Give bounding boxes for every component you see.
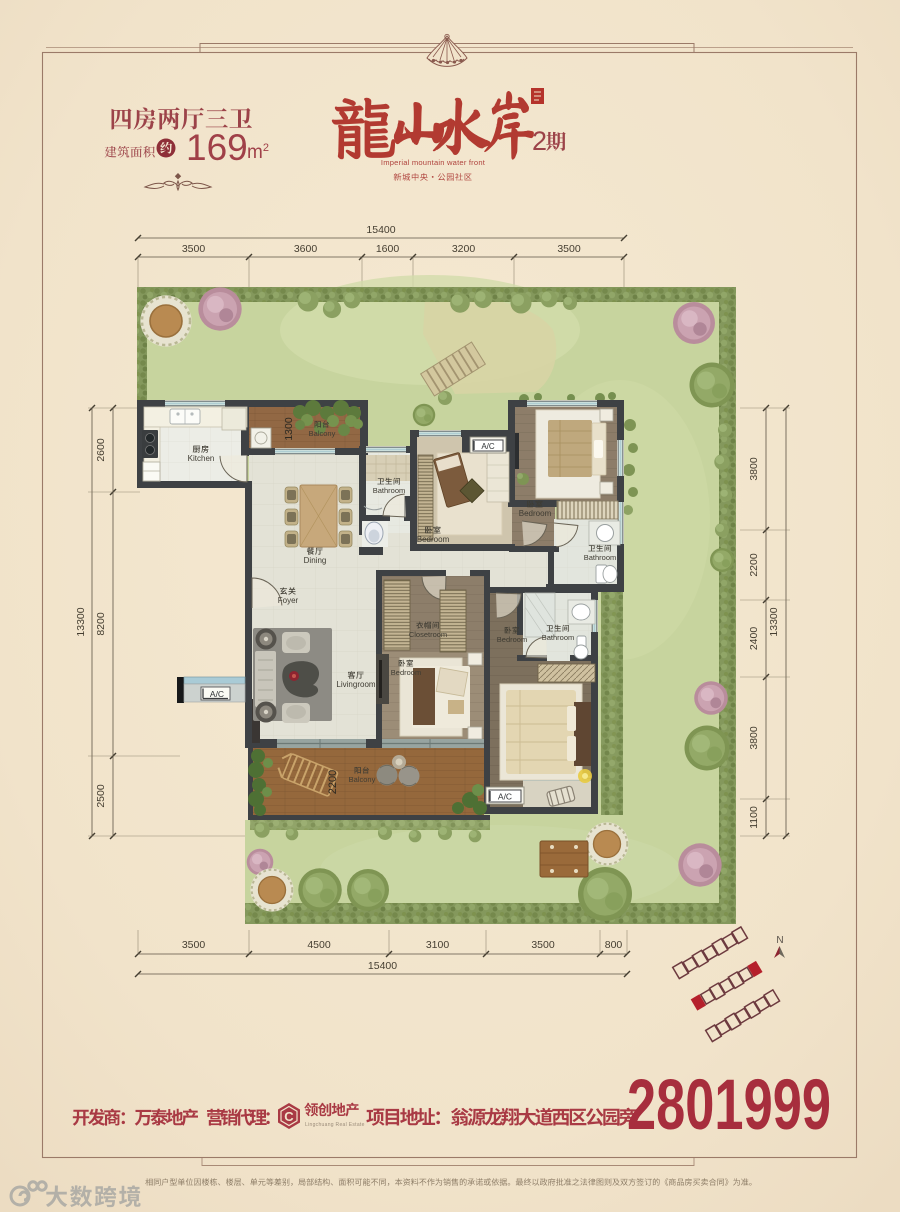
svg-text:Imperial mountain water front: Imperial mountain water front [381,158,486,167]
svg-text:Balcony: Balcony [349,775,376,784]
svg-text:1300: 1300 [283,417,295,441]
svg-text:2801999: 2801999 [627,1066,831,1145]
svg-text:3500: 3500 [531,939,555,951]
svg-text:Foyer: Foyer [278,596,299,605]
svg-text:800: 800 [605,939,623,951]
svg-text:15400: 15400 [368,960,397,972]
svg-text:Bathroom: Bathroom [584,553,617,562]
svg-text:3200: 3200 [452,243,476,255]
svg-text:3800: 3800 [748,457,760,481]
svg-text:Bathroom: Bathroom [373,486,406,495]
svg-text:2500: 2500 [95,784,107,808]
svg-text:169: 169 [186,127,248,168]
svg-text:N: N [776,935,783,946]
svg-text:2: 2 [532,126,547,156]
svg-text:2200: 2200 [748,553,760,577]
svg-text:Balcony: Balcony [309,429,336,438]
svg-text:3500: 3500 [557,243,581,255]
svg-text:3100: 3100 [426,939,450,951]
svg-text:1600: 1600 [376,243,400,255]
svg-text:Bedroom: Bedroom [519,509,552,518]
svg-text:2600: 2600 [95,438,107,462]
svg-text:3600: 3600 [294,243,318,255]
svg-text:3800: 3800 [748,726,760,750]
svg-text:A/C: A/C [498,792,512,802]
svg-text:13300: 13300 [75,607,87,636]
svg-text:Dining: Dining [304,556,327,565]
svg-text:Bedroom: Bedroom [417,535,450,544]
svg-text:15400: 15400 [366,224,395,236]
svg-text:Bathroom: Bathroom [542,633,575,642]
svg-text:8200: 8200 [95,612,107,636]
svg-text:Bedroom: Bedroom [391,668,421,677]
svg-text:A/C: A/C [210,689,224,699]
svg-text:Lingchuang Real Estate: Lingchuang Real Estate [305,1122,365,1128]
svg-text:Closetroom: Closetroom [409,630,447,639]
svg-text:A/C: A/C [481,442,495,451]
svg-text:4500: 4500 [307,939,331,951]
svg-text:Bedroom: Bedroom [497,635,527,644]
svg-text:3500: 3500 [182,939,206,951]
svg-text:C: C [284,1109,294,1124]
svg-text:Kitchen: Kitchen [188,454,215,463]
svg-text:1100: 1100 [748,806,760,829]
svg-text:2400: 2400 [748,627,760,651]
svg-text:Livingroom: Livingroom [336,680,375,689]
svg-text:3500: 3500 [182,243,206,255]
svg-text:2200: 2200 [327,770,339,794]
svg-text:13300: 13300 [768,607,780,636]
